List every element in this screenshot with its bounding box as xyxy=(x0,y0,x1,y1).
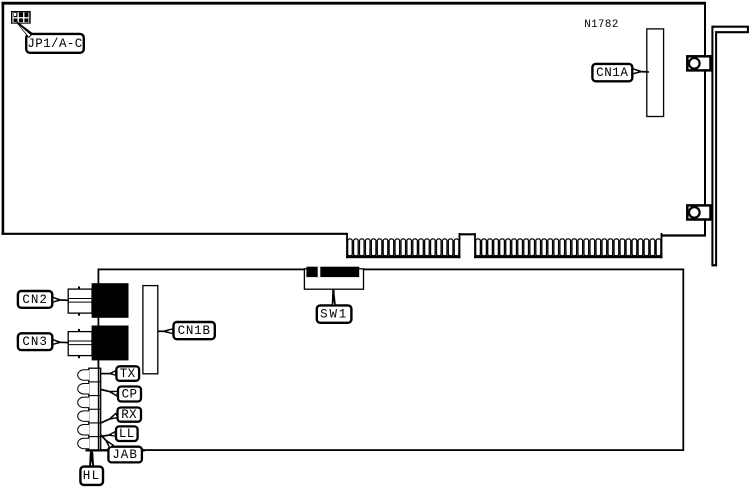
svg-text:RX: RX xyxy=(121,408,137,422)
svg-text:JAB: JAB xyxy=(112,448,138,462)
svg-text:TX: TX xyxy=(120,367,136,381)
svg-text:CN3: CN3 xyxy=(22,335,48,349)
svg-text:SW1: SW1 xyxy=(320,308,348,322)
svg-text:CP: CP xyxy=(122,387,138,401)
svg-text:LL: LL xyxy=(119,427,135,441)
svg-text:JP1/A-C: JP1/A-C xyxy=(27,37,82,51)
svg-text:CN2: CN2 xyxy=(22,293,48,307)
svg-text:N1782: N1782 xyxy=(584,19,618,31)
svg-text:CN1A: CN1A xyxy=(596,66,628,80)
svg-text:HL: HL xyxy=(83,469,101,483)
svg-text:CN1B: CN1B xyxy=(178,324,211,338)
